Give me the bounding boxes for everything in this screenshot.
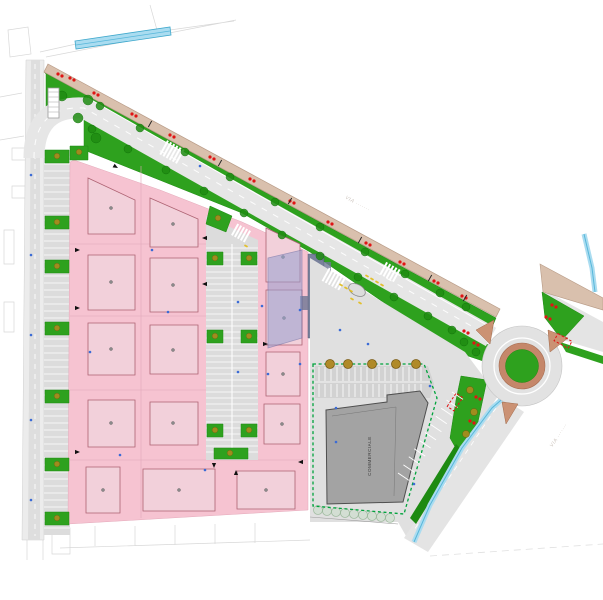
red-marker-pairs (548, 317, 551, 320)
utility-blue-dots (339, 329, 342, 332)
utility-blue-dots (237, 301, 240, 304)
left-parking-strip (44, 150, 70, 535)
utility-blue-dots (267, 373, 270, 376)
red-marker-pairs (474, 395, 477, 398)
site-plan: COMMERCIALEVIA ·······VIA ······· (0, 0, 603, 600)
red-marker-pairs (468, 419, 471, 422)
tree-park (73, 113, 83, 123)
canal-topleft-centerline (76, 31, 170, 45)
tree-row-lower (200, 187, 208, 195)
hedge-circles (377, 513, 386, 522)
hedge-circles (341, 509, 350, 518)
red-marker-pairs (462, 329, 465, 332)
pad-center-marker (282, 373, 285, 376)
red-marker-pairs (466, 331, 469, 334)
utility-blue-dots (204, 469, 207, 472)
red-marker-pairs (544, 315, 547, 318)
shrub-olive-islands (212, 427, 218, 433)
red-marker-pairs (476, 343, 479, 346)
pad-center-marker (265, 489, 268, 492)
tree-row-lower (460, 338, 468, 346)
tree-row-upper (361, 248, 369, 256)
tree-commercial (326, 360, 335, 369)
hedge-circles (368, 512, 377, 521)
shrub-olive-islands (212, 333, 218, 339)
red-marker-pairs (60, 74, 63, 77)
tree-commercial (392, 360, 401, 369)
red-marker-pairs (130, 112, 133, 115)
red-marker-pairs (472, 341, 475, 344)
tree-row-upper (316, 223, 324, 231)
tree-row-lower (240, 209, 248, 217)
tree-commercial (344, 360, 353, 369)
shrub-olive-islands (246, 333, 252, 339)
utility-blue-dots (30, 419, 33, 422)
pad-center-marker (281, 423, 284, 426)
tree-row-upper (226, 173, 234, 181)
red-marker-pairs (364, 241, 367, 244)
pad-center-marker (178, 489, 181, 492)
tree-row-lower (390, 293, 398, 301)
shrub-olive-islands (54, 515, 60, 521)
pad-center-marker (172, 349, 175, 352)
pad-center-marker (110, 348, 113, 351)
red-marker-pairs (368, 243, 371, 246)
small-white-building (48, 88, 59, 118)
utility-blue-dots (413, 483, 416, 486)
red-marker-pairs (208, 155, 211, 158)
street-label-right: VIA ······· (549, 422, 569, 448)
roundabout-center-green (506, 350, 539, 383)
shrub-olive-islands (54, 263, 60, 269)
tree-row-lower (448, 326, 456, 334)
red-marker-pairs (134, 114, 137, 117)
tree-commercial (412, 360, 421, 369)
pad-center-marker (172, 422, 175, 425)
hedge-circles (350, 510, 359, 519)
utility-blue-dots (30, 174, 33, 177)
red-marker-pairs (56, 72, 59, 75)
red-marker-pairs (550, 303, 553, 306)
shrub-olive-islands (246, 427, 252, 433)
shrub-olive-islands (54, 461, 60, 467)
tree-row-upper (462, 303, 470, 311)
utility-blue-dots (151, 249, 154, 252)
shrub-olive-islands (227, 450, 233, 456)
utility-blue-dots (299, 309, 302, 312)
pad-center-marker (172, 284, 175, 287)
tree-row-upper (436, 289, 444, 297)
utility-blue-dots (30, 499, 33, 502)
utility-blue-dots (429, 385, 432, 388)
pad-center-marker (172, 223, 175, 226)
tree-row-lower (88, 125, 96, 133)
shrub-olive-islands (215, 215, 221, 221)
red-marker-pairs (212, 157, 215, 160)
pad-center-marker (110, 207, 113, 210)
tree-row-lower (472, 348, 480, 356)
utility-blue-dots (335, 441, 338, 444)
utility-blue-dots (119, 454, 122, 457)
shrub-olive-islands (54, 153, 60, 159)
red-marker-pairs (252, 179, 255, 182)
red-marker-pairs (326, 220, 329, 223)
street-label-top: VIA ······· (344, 195, 371, 214)
tree-park (83, 95, 93, 105)
tree-olive-south (467, 387, 474, 394)
tree-row-upper (96, 102, 104, 110)
red-marker-pairs (330, 222, 333, 225)
tree-row-upper (136, 124, 144, 132)
utility-blue-dots (335, 407, 338, 410)
utility-blue-dots (261, 305, 264, 308)
red-marker-pairs (168, 133, 171, 136)
red-marker-pairs (554, 305, 557, 308)
tree-row-lower (124, 145, 132, 153)
site-plan-svg: COMMERCIALEVIA ·······VIA ······· (0, 0, 603, 600)
red-marker-pairs (472, 421, 475, 424)
red-marker-pairs (96, 93, 99, 96)
tree-row-lower (354, 273, 362, 281)
utility-blue-dots (199, 165, 202, 168)
red-marker-pairs (68, 76, 71, 79)
shrub-olive-islands (54, 393, 60, 399)
utility-blue-dots (299, 363, 302, 366)
commercial-building-label: COMMERCIALE (367, 436, 372, 476)
red-marker-pairs (478, 397, 481, 400)
tree-row-lower (424, 312, 432, 320)
red-marker-pairs (248, 177, 251, 180)
tree-row-lower (316, 252, 324, 260)
red-marker-pairs (402, 262, 405, 265)
tree-row-upper (401, 270, 409, 278)
tree-row-upper (181, 148, 189, 156)
red-marker-pairs (92, 91, 95, 94)
red-marker-pairs (460, 294, 463, 297)
red-marker-pairs (436, 281, 439, 284)
red-marker-pairs (172, 135, 175, 138)
shrub-olive-islands (212, 255, 218, 261)
shrub-olive-islands (246, 255, 252, 261)
tree-row-lower (278, 231, 286, 239)
tree-row-lower (162, 166, 170, 174)
shrub-olive-islands (54, 325, 60, 331)
tree-row-upper (271, 198, 279, 206)
utility-blue-dots (30, 254, 33, 257)
shrub-olive-islands (76, 149, 82, 155)
pad-center-marker (110, 281, 113, 284)
tree-park (91, 133, 101, 143)
tree-olive-south (463, 431, 470, 438)
hedge-circles (359, 511, 368, 520)
overlay-building-violet (268, 250, 302, 348)
utility-blue-dots (167, 311, 170, 314)
hedge-circles (386, 514, 395, 523)
tree-commercial (368, 360, 377, 369)
tree-olive-south (471, 409, 478, 416)
red-marker-pairs (72, 78, 75, 81)
shrub-olive-islands (54, 219, 60, 225)
red-marker-pairs (292, 201, 295, 204)
utility-blue-dots (237, 371, 240, 374)
pad-center-marker (102, 489, 105, 492)
context-outline-dashed (430, 544, 603, 556)
utility-blue-dots (367, 343, 370, 346)
traffic-arrow (113, 164, 119, 170)
utility-blue-dots (30, 334, 33, 337)
pad-center-marker (110, 422, 113, 425)
red-marker-pairs (432, 279, 435, 282)
red-marker-pairs (398, 260, 401, 263)
utility-blue-dots (89, 351, 92, 354)
